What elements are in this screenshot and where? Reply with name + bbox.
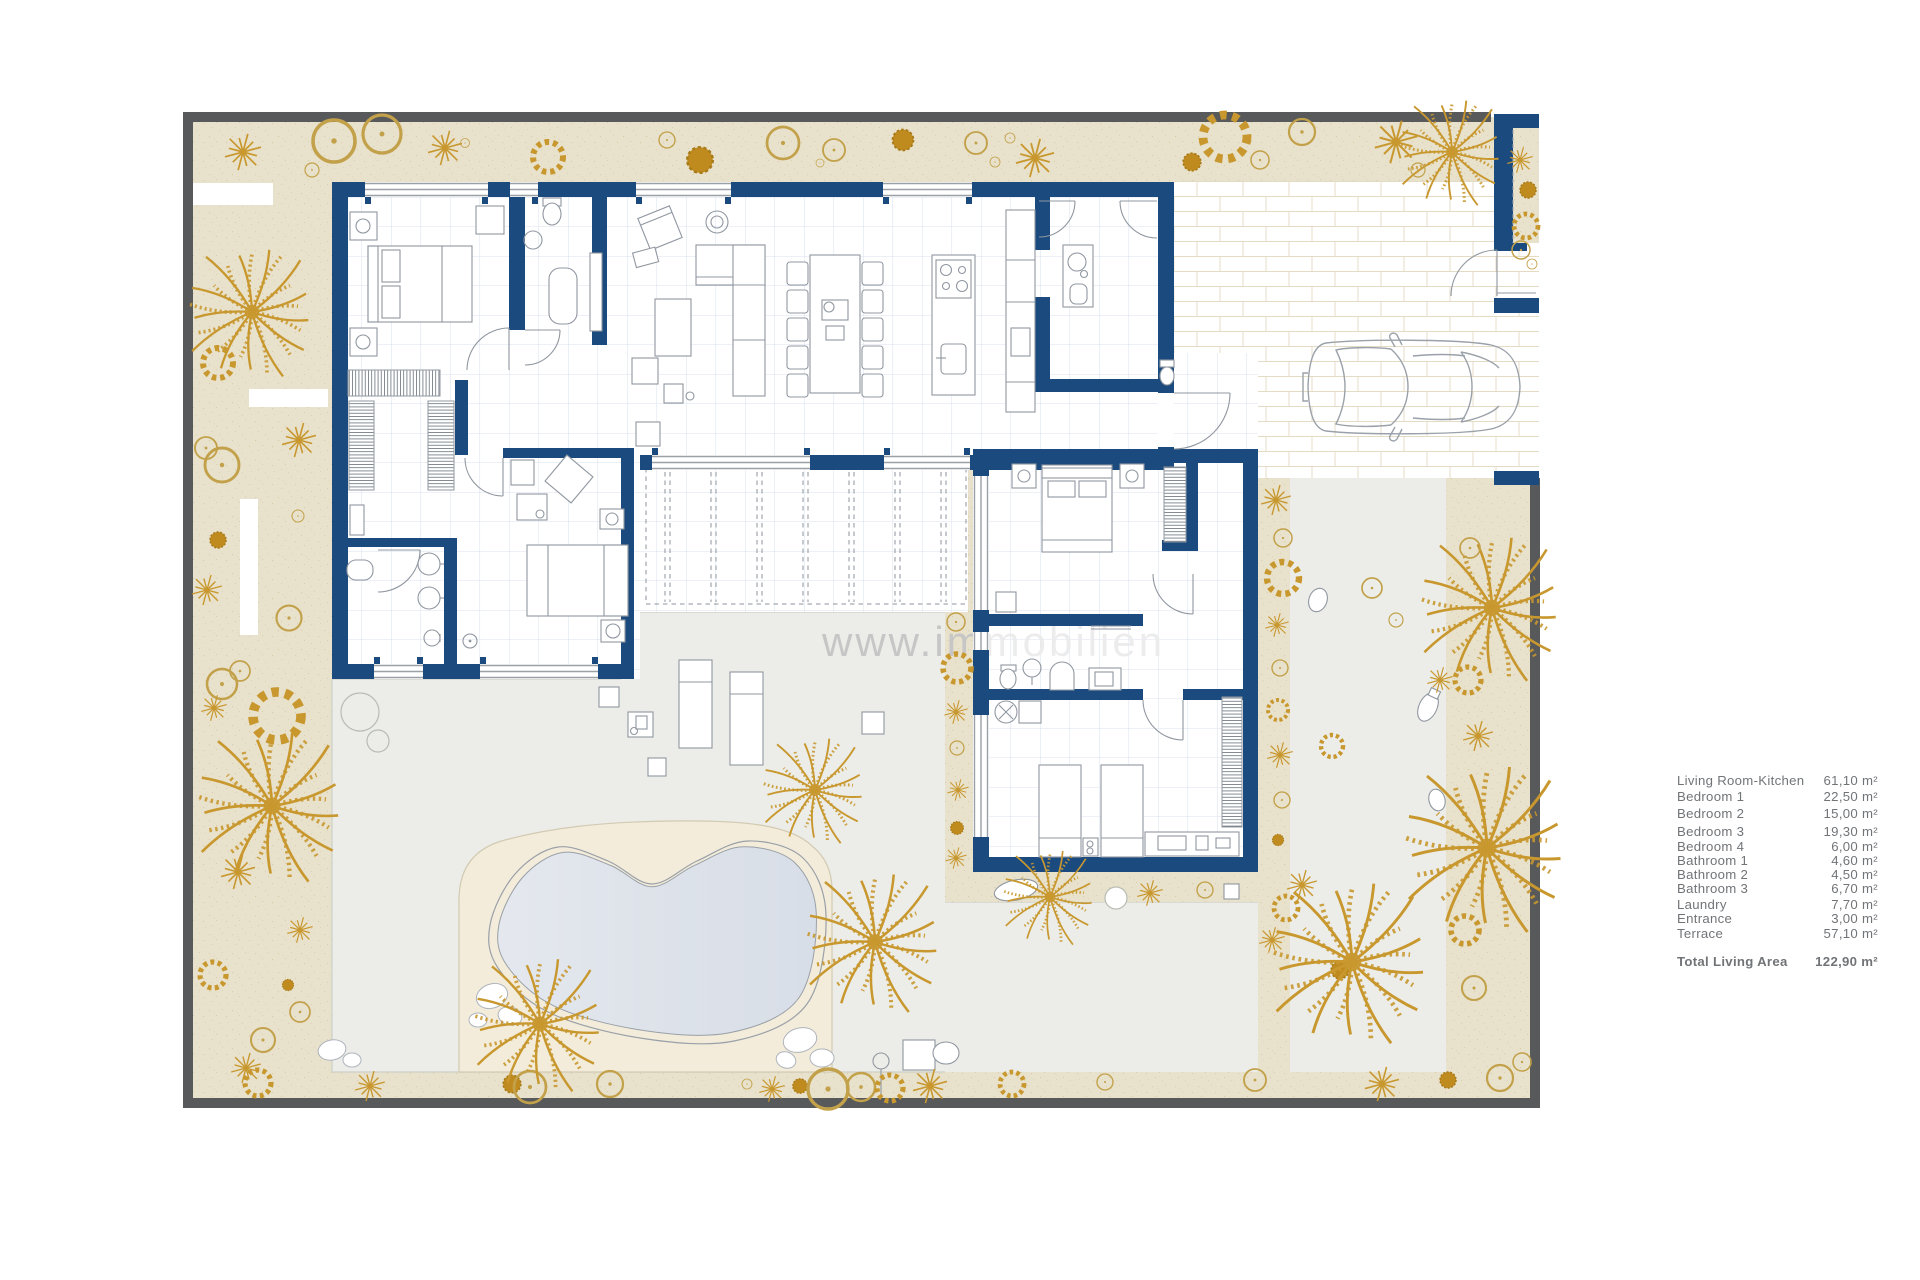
svg-text:57,10 m²: 57,10 m² — [1824, 926, 1879, 941]
svg-text:6,00 m²: 6,00 m² — [1831, 839, 1878, 854]
svg-text:61,10 m²: 61,10 m² — [1824, 773, 1879, 788]
svg-text:4,50 m²: 4,50 m² — [1831, 867, 1878, 882]
svg-text:Bedroom 1: Bedroom 1 — [1677, 789, 1744, 804]
svg-text:Entrance: Entrance — [1677, 911, 1732, 926]
svg-text:4,60 m²: 4,60 m² — [1831, 853, 1878, 868]
svg-text:19,30 m²: 19,30 m² — [1824, 824, 1879, 839]
svg-text:Bedroom 2: Bedroom 2 — [1677, 806, 1744, 821]
svg-text:6,70 m²: 6,70 m² — [1831, 881, 1878, 896]
svg-text:Terrace: Terrace — [1677, 926, 1723, 941]
svg-text:Laundry: Laundry — [1677, 897, 1727, 912]
svg-text:Bedroom 4: Bedroom 4 — [1677, 839, 1744, 854]
svg-text:15,00 m²: 15,00 m² — [1824, 806, 1879, 821]
svg-text:122,90 m²: 122,90 m² — [1815, 954, 1878, 969]
svg-text:3,00 m²: 3,00 m² — [1831, 911, 1878, 926]
svg-text:Total Living Area: Total Living Area — [1677, 954, 1788, 969]
svg-text:Bathroom 3: Bathroom 3 — [1677, 881, 1748, 896]
svg-text:Living Room-Kitchen: Living Room-Kitchen — [1677, 773, 1804, 788]
svg-text:Bedroom 3: Bedroom 3 — [1677, 824, 1744, 839]
svg-text:22,50 m²: 22,50 m² — [1824, 789, 1879, 804]
svg-text:7,70 m²: 7,70 m² — [1831, 897, 1878, 912]
svg-text:Bathroom 1: Bathroom 1 — [1677, 853, 1748, 868]
svg-text:Bathroom 2: Bathroom 2 — [1677, 867, 1748, 882]
